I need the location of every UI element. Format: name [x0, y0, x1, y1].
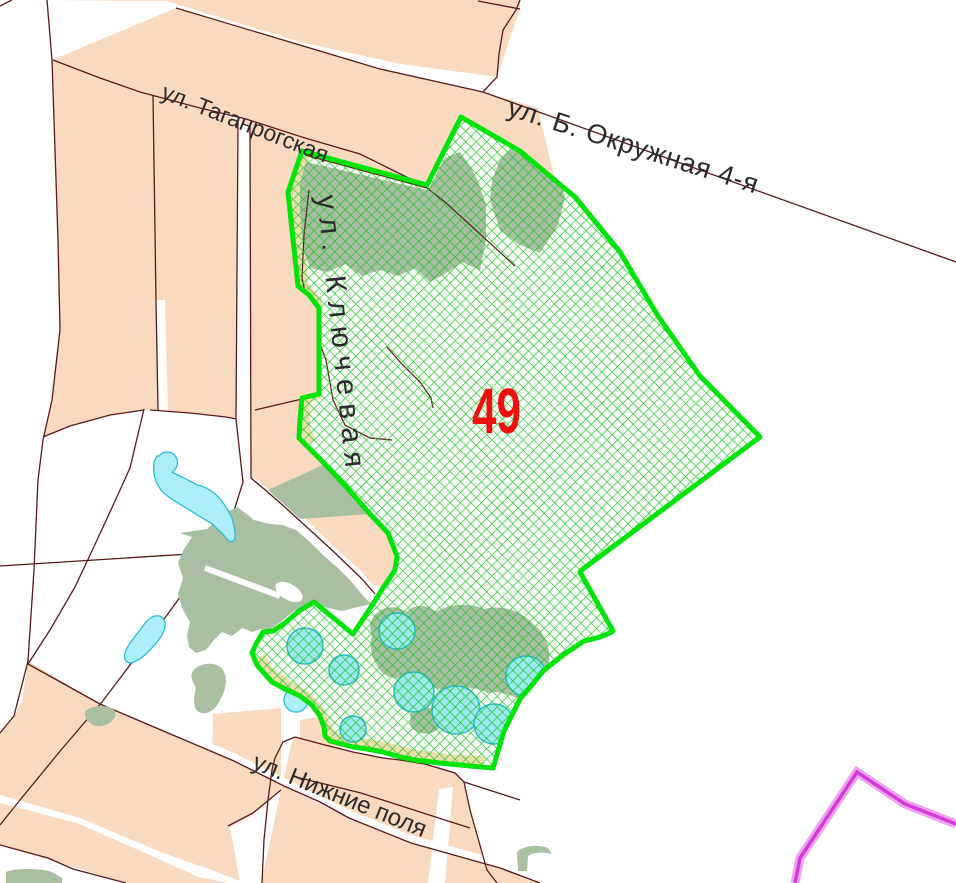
svg-text:49: 49: [472, 375, 521, 447]
